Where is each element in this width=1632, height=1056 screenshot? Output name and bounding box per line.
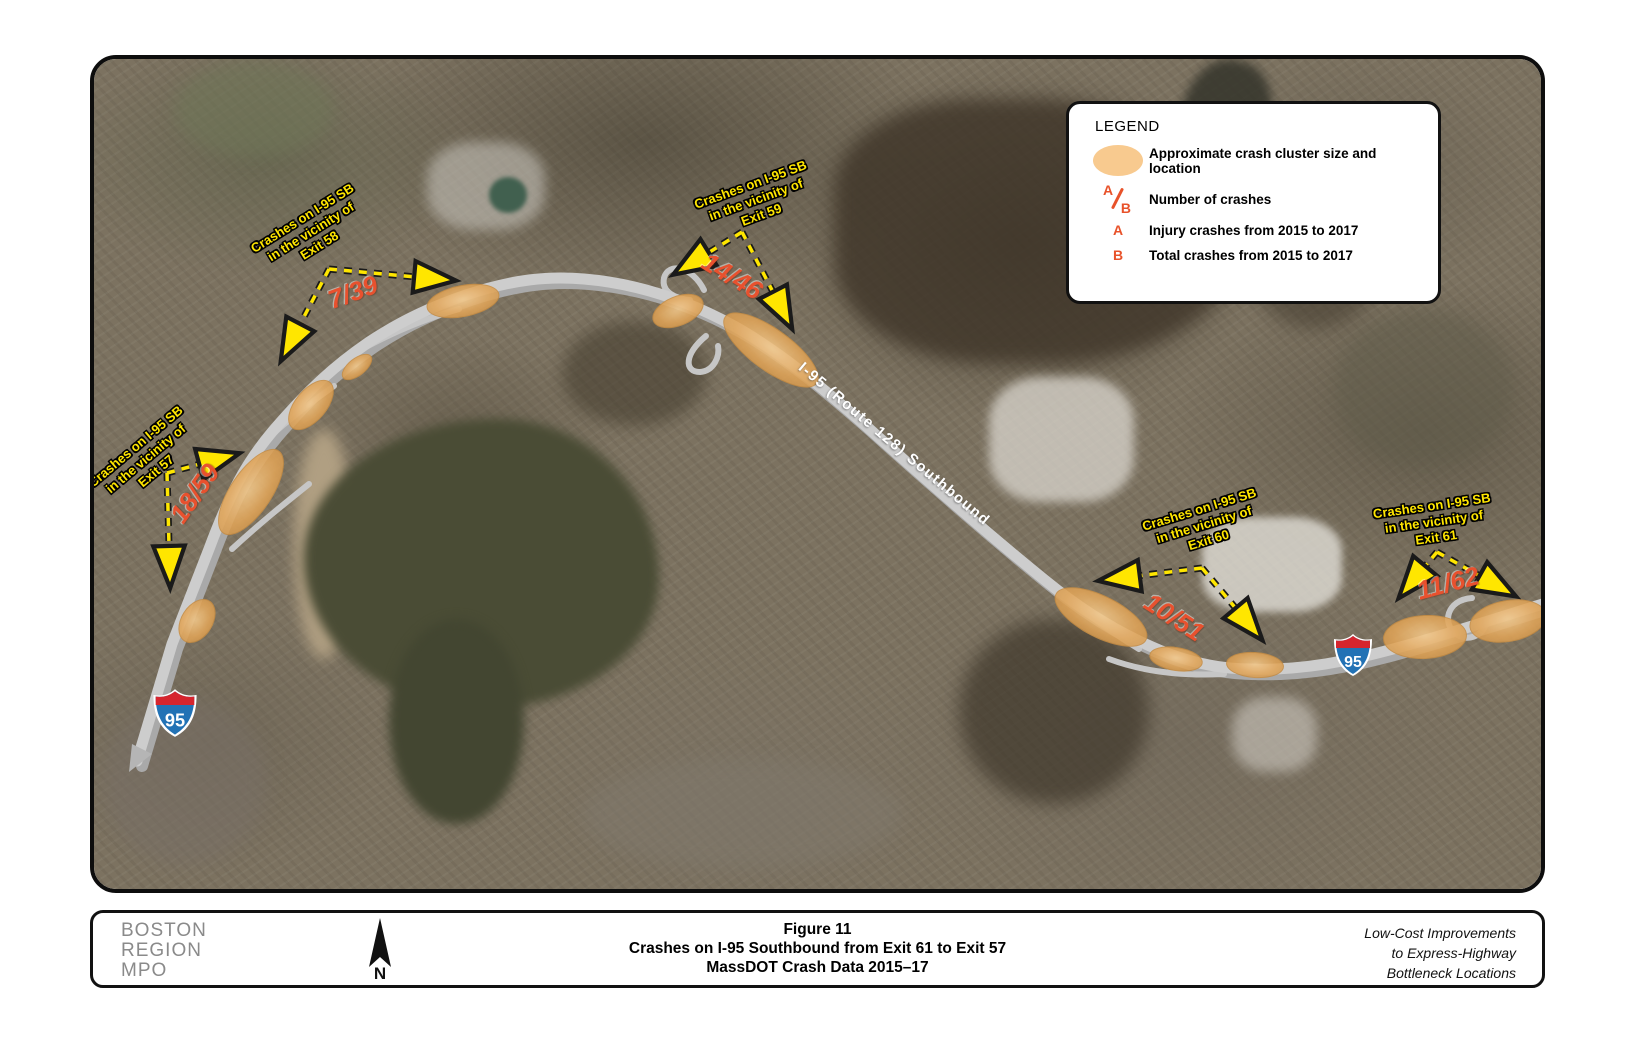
figure-page: I-95 (Route 128) Southbound 95 95: [0, 0, 1632, 1056]
legend-item-label: Approximate crash cluster size and locat…: [1149, 146, 1420, 176]
legend-box: LEGEND Approximate crash cluster size an…: [1066, 101, 1441, 304]
figure-title: Figure 11 Crashes on I-95 Southbound fro…: [93, 920, 1542, 977]
total-symbol: B: [1087, 247, 1149, 263]
project-name: Low-Cost Improvements to Express-Highway…: [1364, 923, 1516, 983]
legend-item-label: Total crashes from 2015 to 2017: [1149, 248, 1420, 263]
crash-fraction-icon: A B: [1102, 185, 1134, 213]
injury-symbol: A: [1087, 222, 1149, 238]
legend-item-label: Number of crashes: [1149, 192, 1420, 207]
legend-title: LEGEND: [1095, 118, 1420, 135]
map-frame: I-95 (Route 128) Southbound 95 95: [90, 55, 1545, 893]
legend-item-label: Injury crashes from 2015 to 2017: [1149, 223, 1420, 238]
footer-bar: BOSTON REGION MPO N Figure 11 Crashes on…: [90, 910, 1545, 988]
crash-cluster-swatch-icon: [1093, 145, 1143, 176]
